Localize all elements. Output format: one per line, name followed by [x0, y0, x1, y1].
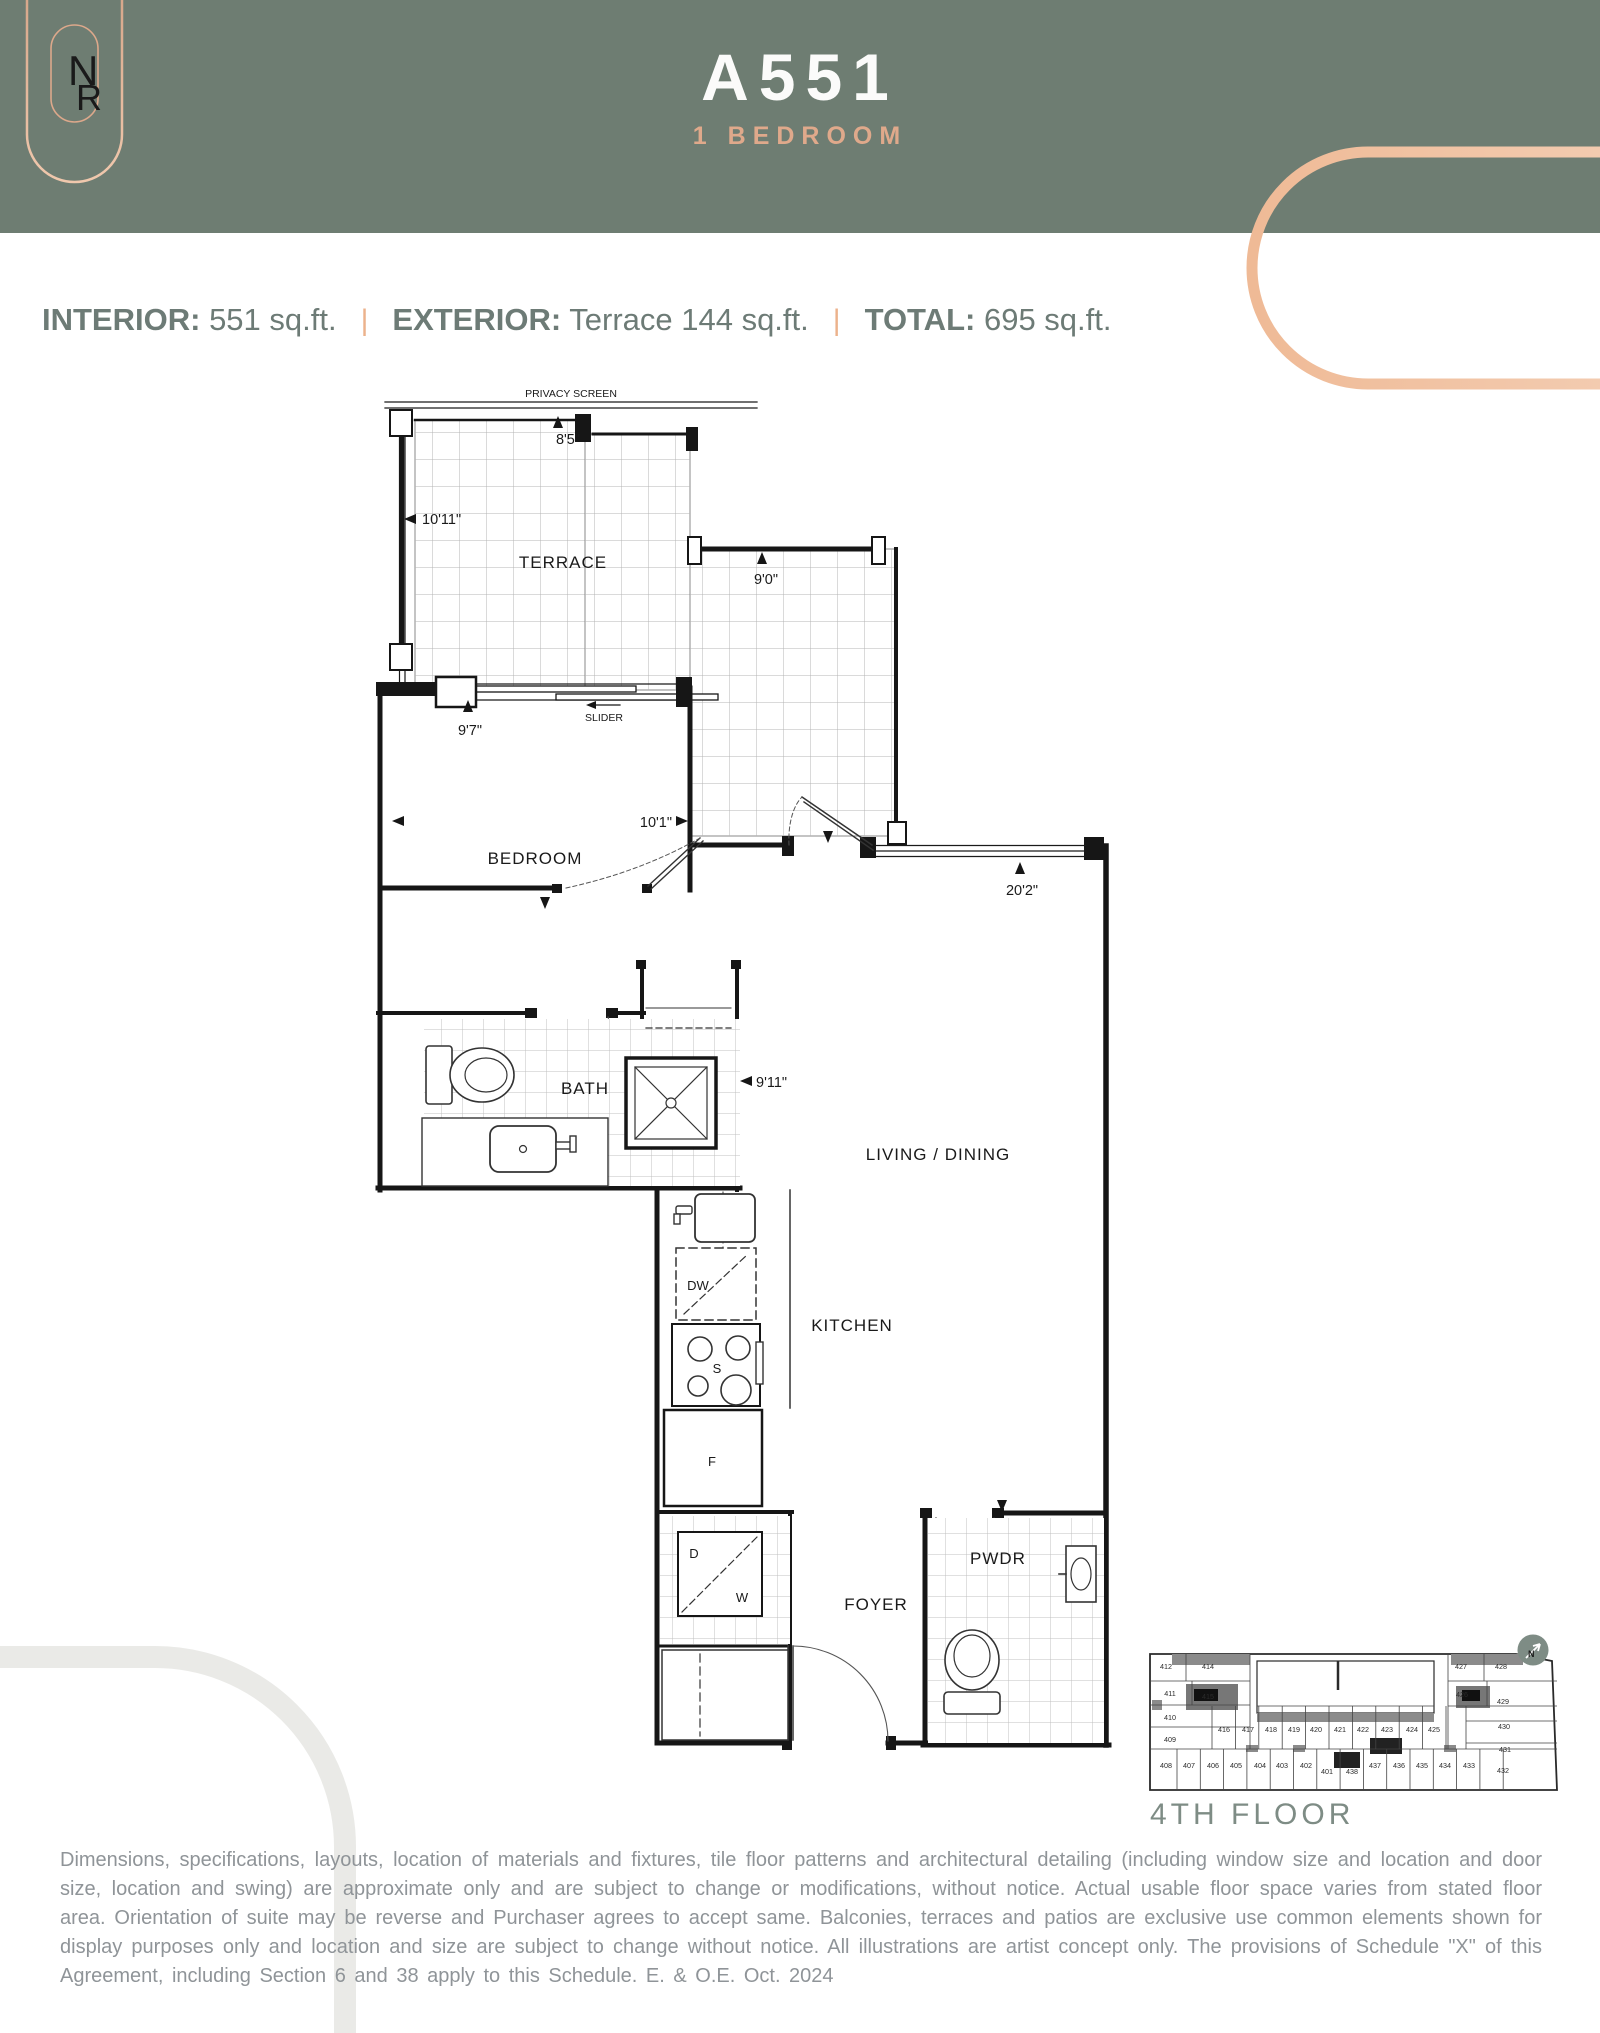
keyplan-unit-408: 408: [1160, 1761, 1172, 1770]
dryer-label: D: [689, 1546, 698, 1561]
keyplan-unit-426: 426: [1456, 1690, 1468, 1699]
keyplan-unit-438: 438: [1346, 1767, 1358, 1776]
stove-label: S: [713, 1361, 722, 1376]
storage-closet: [662, 1650, 788, 1740]
keyplan-unit-411: 411: [1164, 1689, 1175, 1698]
interior-stat: INTERIOR: 551 sq.ft.: [42, 302, 337, 338]
keyplan-unit-427: 427: [1455, 1662, 1467, 1671]
exterior-stat: EXTERIOR: Terrace 144 sq.ft.: [392, 302, 808, 338]
suite-plan: PRIVACY SCREEN TERRACE BEDROOM BATH LIVI…: [376, 388, 1109, 1750]
keyplan-courtyard: [1257, 1661, 1434, 1713]
keyplan-unit-433: 433: [1463, 1761, 1475, 1770]
keyplan-unit-414: 414: [1202, 1662, 1214, 1671]
keyplan-unit-424: 424: [1406, 1725, 1418, 1734]
north-arrow-icon: N: [1518, 1635, 1549, 1666]
legal-disclaimer: Dimensions, specifications, layouts, loc…: [60, 1846, 1542, 1991]
bath-sink: [490, 1126, 556, 1172]
dim-terrace-left: 10'11": [422, 512, 461, 528]
decorative-copper-arc: [1252, 152, 1600, 384]
privacy-screen-line: [385, 402, 757, 408]
keyplan-unit-412: 412: [1160, 1662, 1172, 1671]
room-label-kitchen: KITCHEN: [811, 1316, 893, 1335]
dim-bedroom-top: 9'7": [458, 723, 482, 739]
kitchen-area: [664, 1190, 790, 1506]
keyplan-unit-423: 423: [1381, 1725, 1393, 1734]
room-label-powder: PWDR: [970, 1549, 1026, 1568]
keyplan-unit-403: 403: [1276, 1761, 1288, 1770]
keyplan-unit-425: 425: [1428, 1725, 1440, 1734]
keyplan-unit-410: 410: [1164, 1713, 1176, 1722]
stat-divider: |: [361, 304, 369, 338]
keyplan-unit-419: 419: [1288, 1725, 1300, 1734]
powder-toilet: [945, 1630, 999, 1690]
dim-living-width: 20'2": [1006, 883, 1038, 899]
kitchen-sink: [695, 1194, 755, 1242]
keyplan-unit-407: 407: [1183, 1761, 1195, 1770]
room-label-living: LIVING / DINING: [866, 1145, 1010, 1164]
slider-label: SLIDER: [585, 712, 623, 724]
keyplan-unit-436: 436: [1393, 1761, 1405, 1770]
keyplan-unit-437: 437: [1369, 1761, 1381, 1770]
bath-toilet: [426, 1046, 452, 1104]
stat-divider: |: [833, 304, 841, 338]
keyplan-unit-434: 434: [1439, 1761, 1451, 1770]
total-stat: TOTAL: 695 sq.ft.: [865, 302, 1112, 338]
keyplan-unit-430: 430: [1498, 1722, 1510, 1731]
keyplan-unit-432: 432: [1497, 1766, 1509, 1775]
washer-label: W: [736, 1590, 749, 1605]
keyplan-unit-418: 418: [1265, 1725, 1277, 1734]
keyplan-unit-402: 402: [1300, 1761, 1312, 1770]
north-letter: N: [1528, 1649, 1535, 1659]
keyplan-unit-415: 415: [1202, 1692, 1214, 1701]
logo-monogram-r: R: [76, 77, 102, 118]
keyplan-floor-label: 4TH FLOOR: [1150, 1798, 1354, 1831]
bedroom-door: [566, 838, 703, 889]
room-label-bath: BATH: [561, 1079, 609, 1098]
fridge-label: F: [708, 1454, 716, 1469]
dim-bath-kitchen: 9'11": [756, 1075, 787, 1091]
keyplan-unit-428: 428: [1495, 1662, 1507, 1671]
living-window: [876, 846, 1086, 857]
privacy-screen-label: PRIVACY SCREEN: [525, 388, 617, 400]
keyplan-unit-417: 417: [1242, 1725, 1254, 1734]
area-stats: INTERIOR: 551 sq.ft. | EXTERIOR: Terrace…: [42, 302, 1112, 338]
keyplan-unit-420: 420: [1310, 1725, 1322, 1734]
keyplan-unit-416: 416: [1218, 1725, 1230, 1734]
keyplan-unit-404: 404: [1254, 1761, 1266, 1770]
dim-bedroom-width: 10'1": [640, 815, 672, 831]
keyplan-unit-431: 431: [1499, 1745, 1511, 1754]
room-label-terrace: TERRACE: [519, 553, 607, 572]
keyplan-unit-409: 409: [1164, 1735, 1176, 1744]
entry-door: [788, 1646, 888, 1741]
keyplan-unit-401: 401: [1321, 1767, 1333, 1776]
keyplan-unit-435: 435: [1416, 1761, 1428, 1770]
keyplan-unit-429: 429: [1497, 1697, 1509, 1706]
keyplan-unit-422: 422: [1357, 1725, 1369, 1734]
room-label-foyer: FOYER: [844, 1595, 908, 1614]
terrace-area: [415, 420, 896, 836]
dim-terrace-right: 9'0": [754, 572, 778, 588]
dishwasher-label: DW: [687, 1278, 709, 1293]
dim-terrace-top: 8'5": [556, 432, 580, 448]
laundry-area: [660, 1516, 790, 1740]
keyplan-unit-421: 421: [1334, 1725, 1346, 1734]
room-label-bedroom: BEDROOM: [488, 849, 583, 868]
brand-logo: N R: [27, 0, 122, 182]
key-plan: 4124144114154104094084164174184194204214…: [1150, 1635, 1557, 1832]
keyplan-unit-406: 406: [1207, 1761, 1219, 1770]
keyplan-unit-405: 405: [1230, 1761, 1242, 1770]
